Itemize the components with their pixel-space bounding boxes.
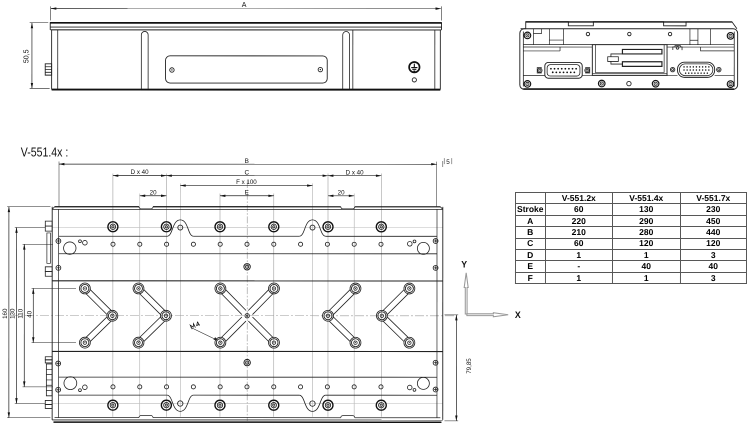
svg-text:F x 100: F x 100 xyxy=(236,179,257,186)
svg-text:A: A xyxy=(242,2,247,9)
svg-text:50,5: 50,5 xyxy=(24,49,31,63)
svg-text:110: 110 xyxy=(17,308,24,318)
svg-text:X: X xyxy=(515,310,521,320)
svg-text:5: 5 xyxy=(446,159,450,166)
svg-text:20: 20 xyxy=(338,189,345,196)
svg-text:79,85: 79,85 xyxy=(466,358,473,374)
svg-text:160: 160 xyxy=(2,308,9,319)
svg-text:40: 40 xyxy=(26,310,33,317)
svg-text:C: C xyxy=(244,169,249,176)
svg-text:130: 130 xyxy=(10,308,17,319)
svg-text:B: B xyxy=(245,158,249,165)
svg-text:D x 40: D x 40 xyxy=(346,169,364,176)
svg-text:Y: Y xyxy=(461,260,467,270)
svg-text:D x 40: D x 40 xyxy=(131,169,149,176)
svg-text:20: 20 xyxy=(150,189,157,196)
svg-text:E: E xyxy=(245,189,249,196)
svg-text:V-551.4x :: V-551.4x : xyxy=(21,146,69,160)
